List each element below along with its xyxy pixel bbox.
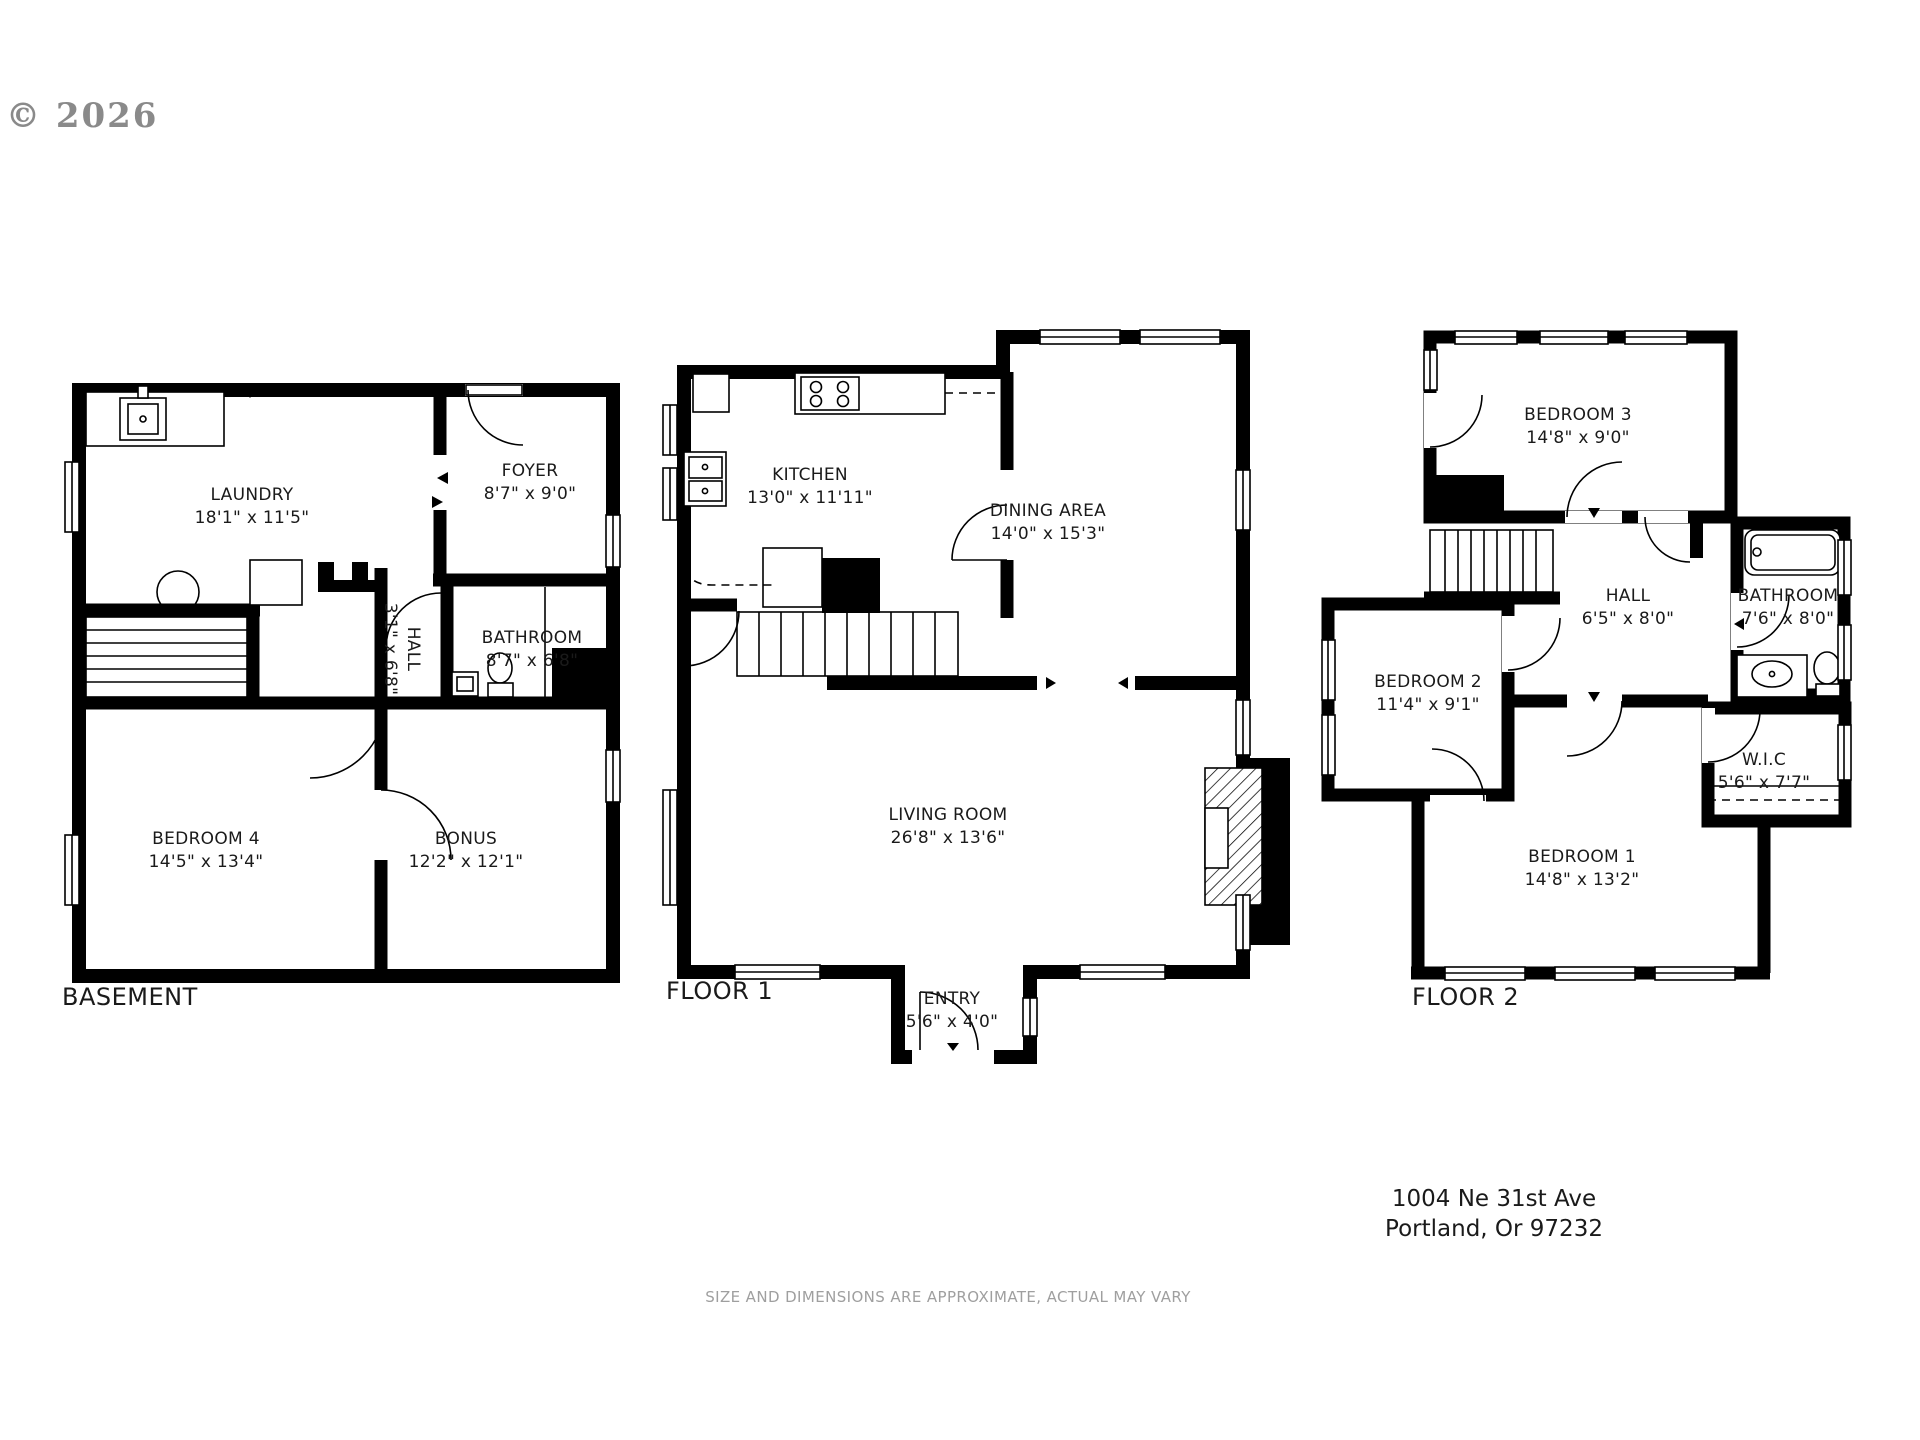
room-dims: 3'1" x 6'8": [378, 603, 401, 695]
wall-pier: [318, 562, 378, 592]
basement-stairs: [86, 617, 247, 697]
room-name: BONUS: [409, 828, 524, 851]
room-dims: 14'5" x 13'4": [149, 851, 264, 874]
door-arc: [1638, 511, 1690, 562]
stove-fixture: [795, 373, 1003, 414]
plan-title-floor1: FLOOR 1: [666, 977, 773, 1005]
room-name: BEDROOM 1: [1525, 846, 1640, 869]
room-name: HALL: [401, 603, 424, 695]
appliance-box: [250, 560, 302, 605]
room-name: LIVING ROOM: [889, 804, 1008, 827]
door-arc: [1502, 616, 1560, 672]
counter-dashed: [684, 528, 772, 585]
chimney-block: [1424, 475, 1504, 523]
room-dims: 6'5" x 8'0": [1582, 608, 1674, 631]
floor1-floorplan: [663, 330, 1290, 1066]
property-address: 1004 Ne 31st Ave Portland, Or 97232: [1385, 1184, 1603, 1244]
room-name: BEDROOM 2: [1374, 671, 1482, 694]
address-line2: Portland, Or 97232: [1385, 1214, 1603, 1244]
room-label-foyer: FOYER 8'7" x 9'0": [484, 460, 576, 506]
wall-pier: [1690, 523, 1703, 558]
door-arc: [465, 384, 523, 445]
room-dims: 5'6" x 4'0": [906, 1011, 998, 1034]
room-dims: 7'6" x 8'0": [1738, 608, 1839, 631]
room-label-entry: ENTRY 5'6" x 4'0": [906, 988, 998, 1034]
room-dims: 14'0" x 15'3": [990, 523, 1106, 546]
floor1-stairs: [737, 612, 958, 676]
door-arc: [1424, 393, 1482, 448]
room-dims: 8'7" x 6'8": [482, 650, 583, 673]
room-dims: 13'0" x 11'11": [747, 487, 873, 510]
dishwasher: [693, 374, 729, 412]
room-label-dining-area: DINING AREA 14'0" x 15'3": [990, 500, 1106, 546]
room-dims: 5'6" x 7'7": [1718, 772, 1810, 795]
room-label-living-room: LIVING ROOM 26'8" x 13'6": [889, 804, 1008, 850]
room-label-bedroom4: BEDROOM 4 14'5" x 13'4": [149, 828, 264, 874]
plan-title-floor2: FLOOR 2: [1412, 983, 1519, 1011]
room-label-bathroom-floor2: BATHROOM 7'6" x 8'0": [1738, 585, 1839, 631]
bathtub-fixture: [1745, 530, 1840, 575]
laundry-sink-fixture: [86, 386, 224, 446]
room-name: KITCHEN: [747, 464, 873, 487]
room-name: LAUNDRY: [195, 484, 310, 507]
room-label-laundry: LAUNDRY 18'1" x 11'5": [195, 484, 310, 530]
wall-segment: [827, 676, 1037, 690]
room-label-bedroom1: BEDROOM 1 14'8" x 13'2": [1525, 846, 1640, 892]
kitchen-sink-fixture: [684, 452, 726, 506]
door-arc: [1430, 749, 1486, 808]
room-name: HALL: [1582, 585, 1674, 608]
copyright-watermark: © 2026: [6, 96, 158, 136]
toilet-fixture: [1814, 652, 1840, 696]
room-dims: 8'7" x 9'0": [484, 483, 576, 506]
kitchen-island: [763, 548, 822, 607]
room-dims: 12'2" x 12'1": [409, 851, 524, 874]
room-name: FOYER: [484, 460, 576, 483]
door-arc: [310, 703, 385, 778]
room-dims: 11'4" x 9'1": [1374, 694, 1482, 717]
room-label-bathroom-basement: BATHROOM 8'7" x 6'8": [482, 627, 583, 673]
room-dims: 26'8" x 13'6": [889, 827, 1008, 850]
room-label-bedroom3: BEDROOM 3 14'8" x 9'0": [1524, 404, 1632, 450]
room-name: DINING AREA: [990, 500, 1106, 523]
wall-pier: [822, 558, 880, 613]
room-dims: 14'8" x 13'2": [1525, 869, 1640, 892]
bathroom-sink-fixture: [1737, 655, 1807, 697]
wall-segment: [1135, 676, 1250, 690]
room-name: BEDROOM 4: [149, 828, 264, 851]
floor2-stairs: [1424, 530, 1560, 598]
room-name: W.I.C: [1718, 749, 1810, 772]
room-dims: 18'1" x 11'5": [195, 507, 310, 530]
room-dims: 14'8" x 9'0": [1524, 427, 1632, 450]
door-arc: [1567, 701, 1622, 756]
floorplan-drawing: [0, 0, 1920, 1440]
disclaimer-text: SIZE AND DIMENSIONS ARE APPROXIMATE, ACT…: [705, 1288, 1191, 1306]
room-name: ENTRY: [906, 988, 998, 1011]
door-arc: [684, 611, 739, 666]
plan-title-basement: BASEMENT: [62, 983, 198, 1011]
room-name: BEDROOM 3: [1524, 404, 1632, 427]
room-label-kitchen: KITCHEN 13'0" x 11'11": [747, 464, 873, 510]
room-label-wic: W.I.C 5'6" x 7'7": [1718, 749, 1810, 795]
room-label-bonus: BONUS 12'2" x 12'1": [409, 828, 524, 874]
floorplan-sheet: © 2026 LAUNDRY 18'1" x 11'5" FOYER 8'7" …: [0, 0, 1920, 1440]
address-line1: 1004 Ne 31st Ave: [1385, 1184, 1603, 1214]
room-label-hall-basement: HALL 3'1" x 6'8": [378, 603, 424, 695]
room-name: BATHROOM: [1738, 585, 1839, 608]
room-label-bedroom2: BEDROOM 2 11'4" x 9'1": [1374, 671, 1482, 717]
room-name: BATHROOM: [482, 627, 583, 650]
room-label-hall-floor2: HALL 6'5" x 8'0": [1582, 585, 1674, 631]
